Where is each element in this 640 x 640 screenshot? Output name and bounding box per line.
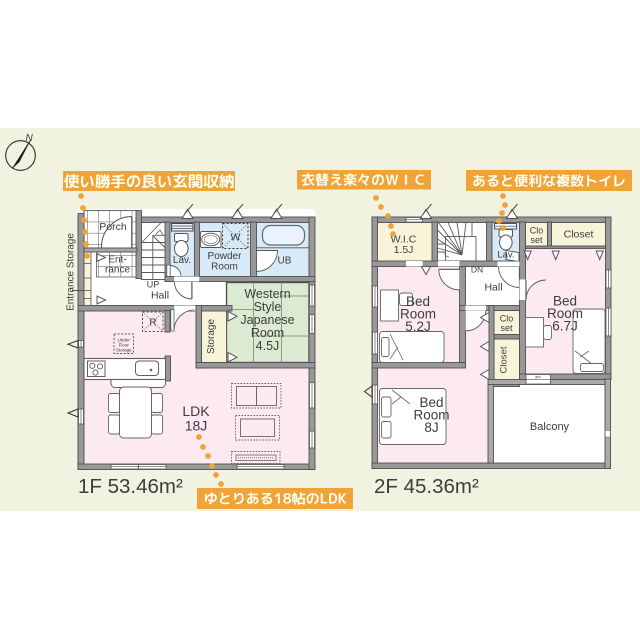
svg-text:Balcony: Balcony	[530, 421, 570, 433]
svg-text:18J: 18J	[185, 418, 208, 434]
svg-text:Style: Style	[254, 300, 282, 314]
svg-text:1F 53.46m²: 1F 53.46m²	[78, 475, 183, 498]
svg-text:1.5J: 1.5J	[394, 244, 414, 256]
svg-text:Entrance Storage: Entrance Storage	[66, 233, 77, 311]
svg-text:Hall: Hall	[151, 290, 169, 302]
svg-text:UB: UB	[278, 256, 292, 267]
svg-text:N: N	[26, 133, 34, 144]
svg-text:Room: Room	[211, 262, 238, 273]
svg-text:Storage: Storage	[206, 319, 217, 354]
svg-text:Closet: Closet	[499, 346, 510, 373]
svg-text:Lav.: Lav.	[173, 255, 191, 266]
svg-text:rance: rance	[105, 265, 130, 276]
svg-text:W: W	[231, 232, 241, 244]
svg-text:8J: 8J	[424, 420, 438, 435]
svg-text:6.7J: 6.7J	[552, 319, 578, 334]
svg-text:Closet: Closet	[564, 229, 594, 241]
svg-text:Western: Western	[244, 287, 290, 301]
svg-text:Clo: Clo	[500, 314, 514, 324]
svg-text:set: set	[530, 235, 543, 245]
svg-text:Porch: Porch	[99, 221, 127, 233]
svg-text:Hall: Hall	[484, 282, 502, 294]
svg-text:UP: UP	[147, 280, 160, 290]
svg-text:Storage: Storage	[116, 348, 132, 353]
svg-text:DN: DN	[471, 265, 483, 275]
svg-text:4.5J: 4.5J	[256, 339, 280, 353]
svg-text:set: set	[500, 323, 513, 333]
svg-text:R: R	[149, 318, 156, 329]
svg-text:5.2J: 5.2J	[405, 319, 431, 334]
svg-text:Room: Room	[251, 326, 284, 340]
svg-text:2F 45.36m²: 2F 45.36m²	[374, 475, 479, 498]
svg-text:Powder: Powder	[208, 251, 243, 262]
svg-text:Japanese: Japanese	[240, 313, 294, 327]
svg-text:Lav.: Lav.	[497, 250, 514, 261]
svg-text:Clo: Clo	[530, 226, 544, 236]
